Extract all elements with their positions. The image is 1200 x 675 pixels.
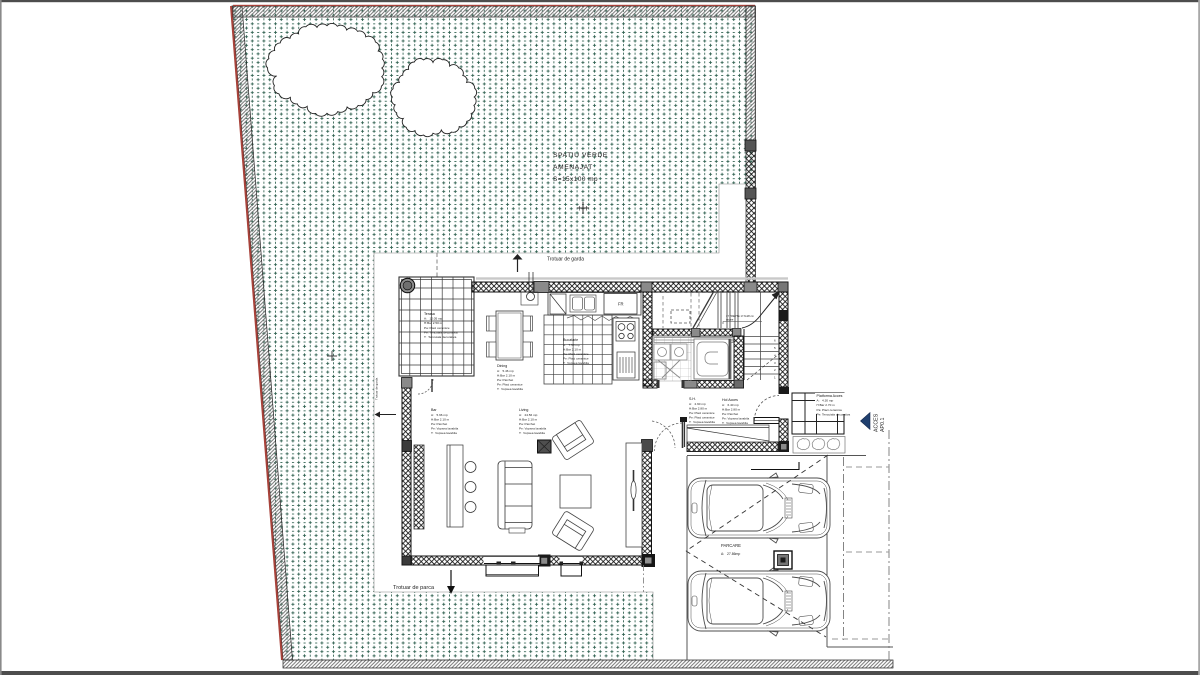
svg-text:Pa: Placi ceramice: Pa: Placi ceramice: [689, 411, 715, 415]
svg-text:Pe: Placi ceramice: Pe: Placi ceramice: [497, 383, 523, 387]
svg-text:T: Vopsea lavabila: T: Vopsea lavabila: [519, 431, 545, 435]
svg-text:S.H.: S.H.: [689, 397, 696, 401]
svg-text:Pa: Placi ceramice: Pa: Placi ceramice: [563, 352, 589, 356]
svg-text:Trotuar de garda: Trotuar de garda: [375, 377, 379, 400]
svg-text:Pe: Vopsea lavabila: Pe: Vopsea lavabila: [519, 427, 546, 431]
svg-text:T: Tencuiala decorativa: T: Tencuiala decorativa: [424, 335, 457, 339]
svg-text:A: 27.86mp: A: 27.86mp: [721, 552, 740, 556]
svg-text:Pa: Parchet: Pa: Parchet: [497, 378, 513, 382]
svg-text:H:Bar 2.10 m: H:Bar 2.10 m: [519, 417, 538, 421]
svg-text:ACCES: ACCES: [874, 413, 880, 432]
svg-text:Pa: Parchet: Pa: Parchet: [722, 412, 738, 416]
svg-text:A: 12.05 mp: A: 12.05 mp: [424, 317, 443, 321]
svg-text:AP0.1: AP0.1: [880, 418, 886, 432]
svg-text:Bucatarie: Bucatarie: [563, 338, 578, 342]
svg-text:A: 6.40 mp: A: 6.40 mp: [722, 403, 739, 407]
svg-text:A: 7.50 mp: A: 7.50 mp: [563, 343, 580, 347]
svg-text:H:Bar 2.10 m: H:Bar 2.10 m: [563, 347, 582, 351]
svg-text:H:Bar 2.70 m: H:Bar 2.70 m: [817, 403, 836, 407]
svg-text:H:Bar 2.50 m: H:Bar 2.50 m: [424, 321, 443, 325]
svg-text:A: 2.60 mp: A: 2.60 mp: [689, 402, 706, 406]
svg-text:Platforma Acces: Platforma Acces: [817, 394, 843, 398]
svg-text:urcare: urcare: [726, 318, 734, 322]
svg-text:Living: Living: [519, 408, 528, 412]
svg-text:Terasa: Terasa: [424, 312, 435, 316]
svg-text:Hol Acces: Hol Acces: [722, 398, 738, 402]
svg-text:T: Vopsea lavabila: T: Vopsea lavabila: [497, 387, 523, 391]
svg-text:A: 5.66 mp: A: 5.66 mp: [431, 413, 448, 417]
svg-text:Pe: Placi ceramice: Pe: Placi ceramice: [563, 357, 589, 361]
svg-text:Pe: Vopsea lavabila: Pe: Vopsea lavabila: [722, 417, 749, 421]
svg-text:Dining: Dining: [497, 364, 507, 368]
svg-text:Pa: Parchet: Pa: Parchet: [519, 422, 535, 426]
svg-text:FR: FR: [618, 302, 624, 307]
svg-text:PARCARE: PARCARE: [721, 543, 741, 548]
svg-text:A: 4.30 mp: A: 4.30 mp: [817, 399, 834, 403]
svg-text:A: 5.46 mp: A: 5.46 mp: [497, 369, 514, 373]
svg-text:Trotuar de garda: Trotuar de garda: [547, 257, 584, 263]
svg-text:AMENAJAT: AMENAJAT: [553, 164, 593, 171]
svg-text:T: Vopsea lavabila: T: Vopsea lavabila: [431, 431, 457, 435]
svg-text:17 TREPTE 17.6x28 cm: 17 TREPTE 17.6x28 cm: [726, 314, 754, 318]
svg-text:H:Bar 2.10 m: H:Bar 2.10 m: [431, 417, 450, 421]
svg-text:T: Vopsea lavabila: T: Vopsea lavabila: [689, 420, 715, 424]
svg-text:Pe: Tencuiala decorativa: Pe: Tencuiala decorativa: [817, 412, 851, 416]
svg-text:Bar: Bar: [431, 408, 437, 412]
svg-text:SPATIU VERDE: SPATIU VERDE: [553, 152, 608, 159]
svg-text:Pa: Placi ceramice: Pa: Placi ceramice: [424, 326, 450, 330]
svg-text:A: 24.56 mp: A: 24.56 mp: [519, 413, 538, 417]
svg-text:H:Bar 2.80 m: H:Bar 2.80 m: [689, 406, 708, 410]
svg-text:T: Vopsea lavabila: T: Vopsea lavabila: [722, 421, 748, 425]
svg-text:Trotuar de parca: Trotuar de parca: [393, 585, 435, 591]
svg-text:Pe: Vopsea lavabila: Pe: Vopsea lavabila: [431, 427, 458, 431]
svg-text:H:Bar 2.10 m: H:Bar 2.10 m: [497, 373, 516, 377]
svg-text:Pa: Placi ceramice: Pa: Placi ceramice: [817, 408, 843, 412]
svg-text:H:Bar 2.80 m: H:Bar 2.80 m: [722, 407, 741, 411]
svg-text:Pe: Placi ceramice: Pe: Placi ceramice: [689, 416, 715, 420]
svg-text:S=15x100 mp: S=15x100 mp: [553, 176, 598, 183]
svg-text:Pe: Tencuiala decorativa: Pe: Tencuiala decorativa: [424, 330, 458, 334]
svg-text:Pa: Parchet: Pa: Parchet: [431, 422, 447, 426]
svg-text:T: Vopsea lavabila: T: Vopsea lavabila: [563, 361, 589, 365]
